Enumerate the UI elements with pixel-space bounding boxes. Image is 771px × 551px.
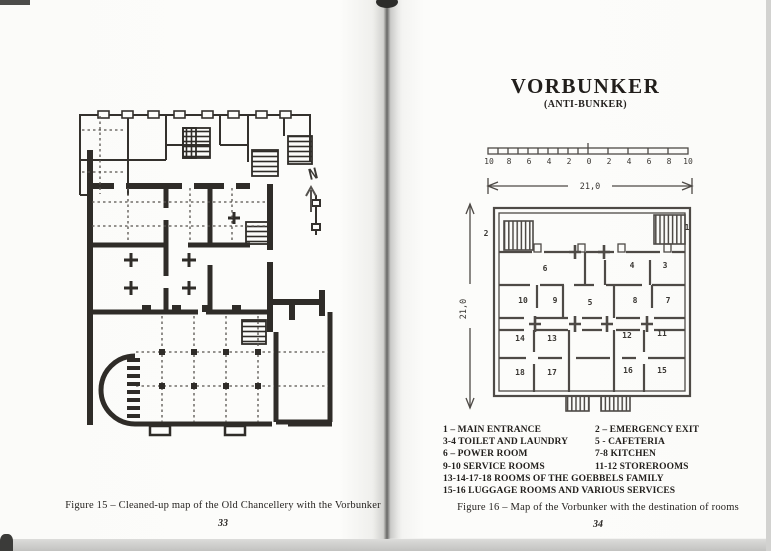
legend-item: 3-4 TOILET AND LAUNDRY [443, 436, 595, 448]
svg-text:2: 2 [567, 157, 572, 166]
svg-text:6: 6 [527, 157, 532, 166]
svg-text:4: 4 [547, 157, 552, 166]
left-page-number: 33 [62, 518, 384, 529]
svg-text:8: 8 [667, 157, 672, 166]
legend-row: 13-14-17-18 ROOMS OF THE GOEBBELS FAMILY [443, 473, 751, 485]
room-label-12: 12 [622, 331, 632, 340]
door-thresholds [150, 426, 245, 435]
photo-edge-right [766, 0, 771, 551]
room-label-4: 4 [630, 261, 635, 270]
room-label-17: 17 [547, 368, 557, 377]
vorbunker-title: VORBUNKER [478, 74, 693, 99]
book-spread-photo: N Figure 15 – Cleaned-up map of the Old … [0, 0, 771, 551]
legend-item: 2 – EMERGENCY EXIT [595, 424, 751, 436]
legend-item: 1 – MAIN ENTRANCE [443, 424, 595, 436]
legend-item: 5 - CAFETERIA [595, 436, 751, 448]
right-thin-wall [312, 195, 320, 235]
photo-background-bottom [0, 539, 771, 551]
scale-bar: 10 8 6 4 2 0 2 4 6 8 10 [484, 141, 696, 169]
width-dimension: 21,0 [486, 176, 694, 196]
cross-stubs [124, 212, 240, 295]
svg-text:8: 8 [507, 157, 512, 166]
room-label-2: 2 [484, 229, 489, 238]
apse [101, 356, 140, 424]
room-label-11: 11 [657, 329, 667, 338]
book-spine-shadow [372, 0, 402, 551]
legend-row: 15-16 LUGGAGE ROOMS AND VARIOUS SERVICES [443, 485, 751, 497]
entrance-stairs [504, 215, 685, 411]
column-squares [159, 349, 261, 389]
room-label-16: 16 [623, 366, 633, 375]
svg-text:6: 6 [647, 157, 652, 166]
legend-item: 13-14-17-18 ROOMS OF THE GOEBBELS FAMILY [443, 473, 664, 485]
room-legend: 1 – MAIN ENTRANCE 2 – EMERGENCY EXIT 3-4… [443, 424, 751, 497]
north-label: N [307, 164, 320, 184]
legend-item: 7-8 KITCHEN [595, 448, 751, 460]
room-label-13: 13 [547, 334, 557, 343]
room-label-15: 15 [657, 366, 667, 375]
room-label-14: 14 [515, 334, 525, 343]
photo-edge-mark-bottomleft [0, 534, 13, 551]
legend-row: 3-4 TOILET AND LAUNDRY 5 - CAFETERIA [443, 436, 751, 448]
room-label-3: 3 [663, 261, 668, 270]
svg-text:21,0: 21,0 [580, 182, 600, 192]
room-label-8: 8 [633, 296, 638, 305]
photo-edge-mark-topleft [0, 0, 30, 5]
figure-16-caption: Figure 16 – Map of the Vorbunker with th… [437, 502, 759, 513]
svg-text:0: 0 [587, 157, 592, 166]
room-label-18: 18 [515, 368, 525, 377]
legend-item: 9-10 SERVICE ROOMS [443, 461, 595, 473]
legend-row: 9-10 SERVICE ROOMS 11-12 STOREROOMS [443, 461, 751, 473]
legend-item: 11-12 STOREROOMS [595, 461, 751, 473]
old-chancellery-plan: N [70, 100, 342, 452]
room-label-9: 9 [553, 296, 558, 305]
room-label-7: 7 [666, 296, 671, 305]
svg-text:10: 10 [484, 157, 494, 166]
svg-text:21,0: 21,0 [459, 299, 469, 319]
dashed-grid-lower [136, 316, 328, 422]
vorbunker-subtitle: (ANTI-BUNKER) [478, 99, 693, 110]
legend-row: 1 – MAIN ENTRANCE 2 – EMERGENCY EXIT [443, 424, 751, 436]
svg-text:10: 10 [683, 157, 693, 166]
figure-15-caption: Figure 15 – Cleaned-up map of the Old Ch… [62, 500, 384, 511]
dashed-lines-upper [82, 116, 268, 243]
legend-row: 6 – POWER ROOM 7-8 KITCHEN [443, 448, 751, 460]
vorbunker-plan: 1 2 3 4 5 6 7 8 9 10 11 12 13 14 15 16 1… [474, 200, 696, 416]
room-label-5: 5 [588, 298, 593, 307]
room-label-10: 10 [518, 296, 528, 305]
svg-text:2: 2 [607, 157, 612, 166]
legend-item: 15-16 LUGGAGE ROOMS AND VARIOUS SERVICES [443, 485, 675, 497]
room-label-1: 1 [685, 223, 690, 232]
legend-item: 6 – POWER ROOM [443, 448, 595, 460]
svg-text:4: 4 [627, 157, 632, 166]
room-label-6: 6 [543, 264, 548, 273]
right-page-number: 34 [437, 519, 759, 530]
